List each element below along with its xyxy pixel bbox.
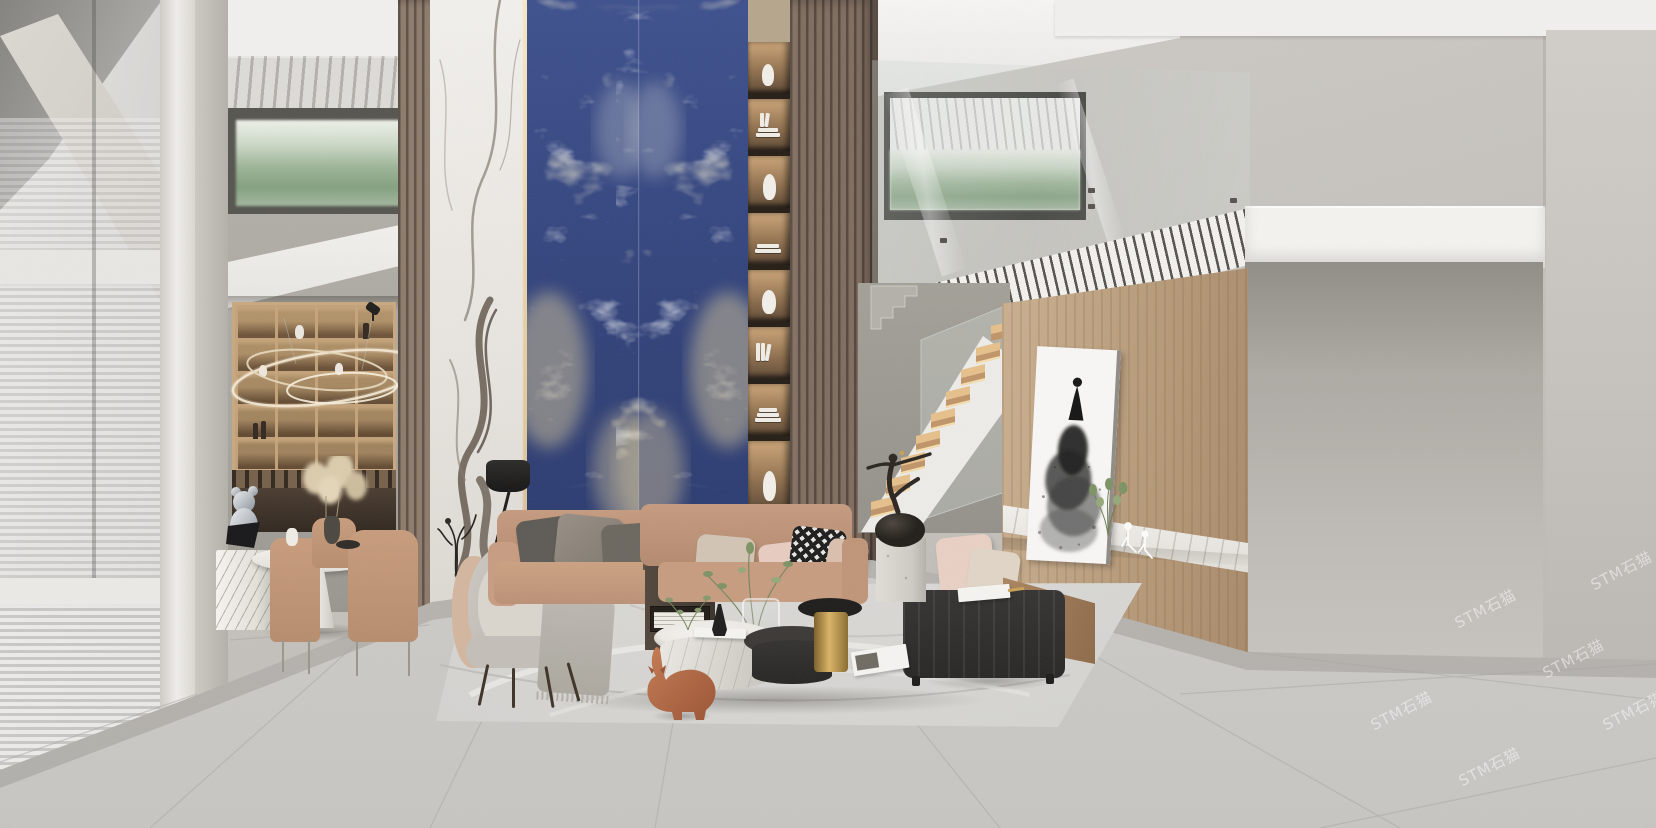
bench-leg xyxy=(1046,674,1054,684)
vase xyxy=(324,516,340,544)
showroom-render: STM石猫 STM石猫 STM石猫 STM石猫 STM石猫 STM石猫 xyxy=(0,0,1656,828)
glass-clip xyxy=(1088,188,1095,193)
book-stack xyxy=(757,244,779,248)
bronze-sculpture xyxy=(858,446,940,548)
magazine-cover xyxy=(855,652,879,670)
chair-leg xyxy=(512,668,515,708)
floor-lamp-shade xyxy=(486,460,530,492)
cat-sculpture xyxy=(640,644,720,722)
glass-clip xyxy=(1230,198,1237,203)
bench-leg xyxy=(912,676,920,686)
right-wall xyxy=(1546,30,1656,664)
black-leather-bench xyxy=(903,590,1065,678)
wire-figurines xyxy=(1118,518,1158,568)
book-stack xyxy=(756,133,780,137)
backlit-bookshelf xyxy=(748,42,792,514)
blue-sodalite-marble-wall xyxy=(527,0,750,560)
upper-flight xyxy=(871,286,917,329)
bowl xyxy=(336,540,360,549)
glass-clip xyxy=(1088,204,1095,209)
book-stack xyxy=(757,413,779,417)
white-vase xyxy=(762,64,774,86)
glass-reflection xyxy=(883,88,966,277)
chair-leg xyxy=(356,640,358,676)
shelf-cell xyxy=(748,384,792,436)
book xyxy=(765,344,772,361)
chair-leg xyxy=(408,640,410,676)
shelf-cell xyxy=(748,327,792,379)
under-mezzanine-wall xyxy=(1245,262,1543,660)
shelf-cell xyxy=(748,156,792,208)
book-stack xyxy=(755,418,781,422)
shelf-cell xyxy=(748,441,792,511)
table-greenery xyxy=(664,592,712,632)
chrome-figure-sculpture xyxy=(220,484,268,556)
book-stack xyxy=(759,408,777,412)
window-mullion xyxy=(92,0,96,578)
shelf-cell xyxy=(748,99,792,151)
window-blinds xyxy=(0,284,162,578)
shelf-cell xyxy=(748,42,792,94)
hills-view xyxy=(236,120,422,206)
window-blinds xyxy=(0,118,162,250)
chair-leg xyxy=(308,640,310,674)
book xyxy=(756,343,760,361)
dining-chair xyxy=(348,530,418,642)
shelf-cell xyxy=(748,270,792,322)
vase xyxy=(286,528,298,546)
book-stack xyxy=(758,128,778,132)
gold-side-table xyxy=(814,612,848,672)
mezzanine-slab xyxy=(1245,206,1545,268)
window-transom xyxy=(0,250,162,284)
book-stack xyxy=(755,249,781,253)
niche-header xyxy=(748,0,792,46)
glass-reflection xyxy=(1056,78,1126,245)
spotlight-stem xyxy=(372,311,374,321)
left-window-wall xyxy=(0,0,197,828)
glass-clip xyxy=(940,238,947,243)
shelf-cell xyxy=(748,213,792,265)
chair-leg xyxy=(282,640,284,672)
book xyxy=(764,113,770,127)
white-vase xyxy=(763,471,776,501)
bookmatched-marble xyxy=(527,0,750,560)
bust-sculpture xyxy=(763,174,776,200)
white-vase xyxy=(762,290,776,314)
